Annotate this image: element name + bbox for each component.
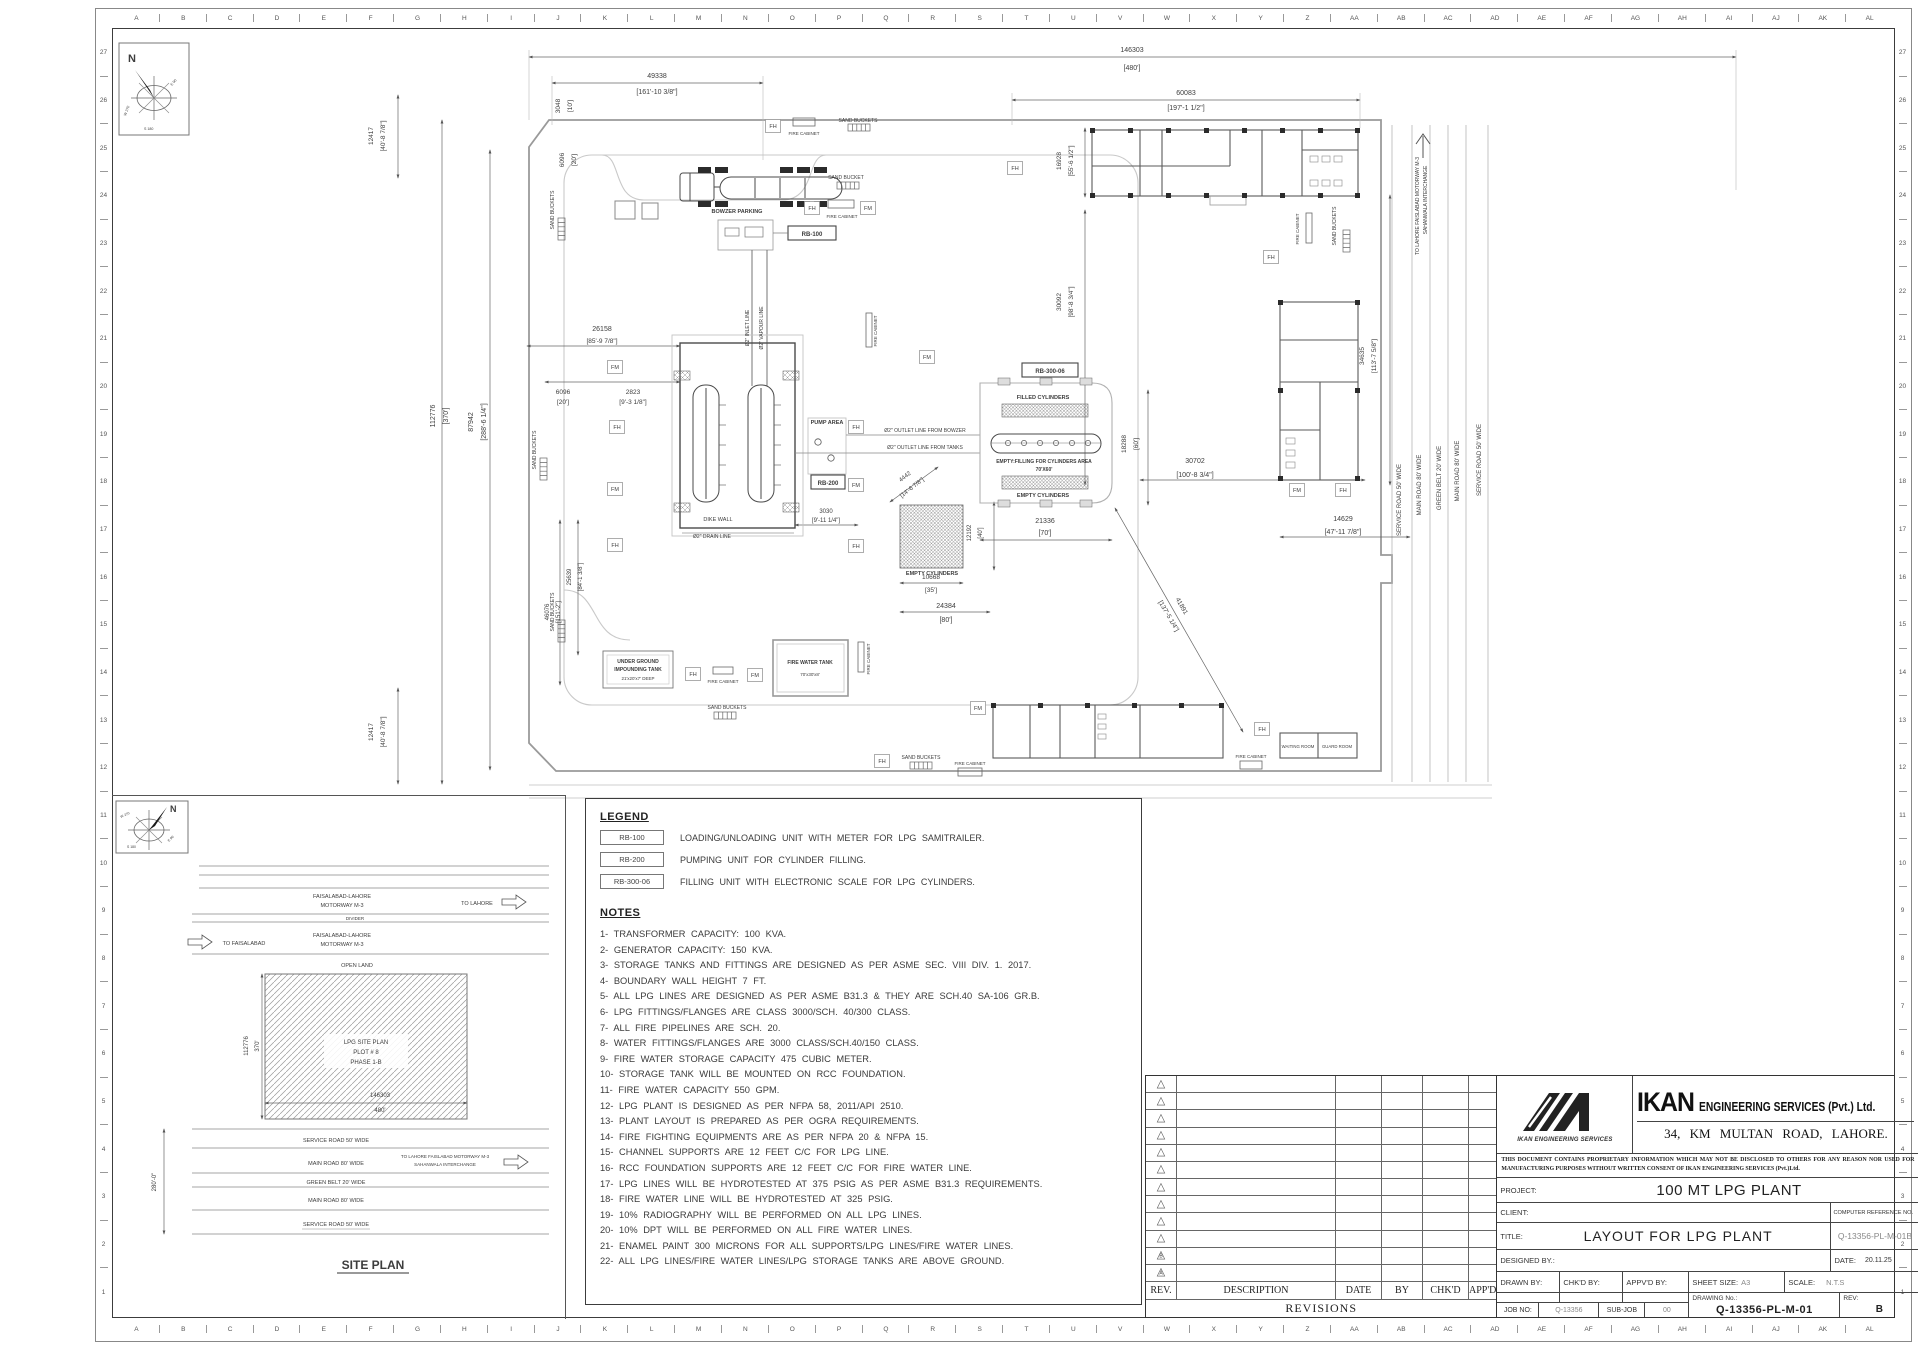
plan-annotation: [55'-6 1/2"]	[1068, 145, 1075, 176]
grid-letter: L	[628, 1318, 675, 1340]
grid-letter: AG	[1612, 1318, 1659, 1340]
plan-annotation: 21'x20'x7' DEEP	[621, 676, 654, 681]
grid-letter: AI	[1706, 8, 1753, 28]
rev-header: REV.	[1146, 1282, 1177, 1299]
plan-annotation: 34635	[1359, 347, 1366, 365]
plan-annotation: [84'-1 3/8"]	[578, 562, 584, 591]
rev-value: B	[1840, 1304, 1918, 1315]
north-arrow-site: N W 270 S 180 E 90	[115, 800, 189, 854]
marker-label: FH	[852, 425, 859, 431]
note-line: 5- ALL LPG LINES ARE DESIGNED AS PER ASM…	[600, 989, 1127, 1005]
grid-letter: N	[722, 8, 769, 28]
grid-letter: L	[628, 8, 675, 28]
company-name-rest: ENGINEERING SERVICES (Pvt.) Ltd.	[1699, 1100, 1875, 1114]
grid-letter: J	[535, 8, 582, 28]
note-line: 13- PLANT LAYOUT IS PREPARED AS PER OGRA…	[600, 1114, 1127, 1130]
grid-number: 25	[1894, 124, 1911, 172]
grid-letter: C	[207, 8, 254, 28]
plan-annotation: FIRE WATER TANK	[787, 660, 833, 666]
scale-value: N.T.S	[1826, 1278, 1844, 1287]
plan-annotation: [151'-2"]	[556, 601, 562, 623]
rev-header: APP'D	[1469, 1282, 1496, 1299]
grid-number: 24	[95, 172, 112, 220]
grid-letter: D	[254, 8, 301, 28]
grid-letter: E	[300, 8, 347, 28]
plan-annotation: FIRE CABINET	[873, 315, 878, 346]
fire-water-tank	[773, 640, 848, 696]
company-logo: IKAN ENGINEERING SERVICES	[1497, 1076, 1633, 1153]
grid-letter: Z	[1284, 1318, 1331, 1340]
plan-annotation: MAIN ROAD 80' WIDE	[1417, 455, 1423, 516]
plan-annotation: [288'-6 1/4"]	[481, 403, 488, 440]
site-annotation: 370'	[255, 1040, 261, 1051]
revision-row: △	[1146, 1196, 1496, 1213]
grid-number: 24	[1894, 172, 1911, 220]
rb100-unit	[718, 220, 836, 386]
plan-annotation: BOWZER PARKING	[712, 209, 763, 215]
grid-letter: AF	[1565, 1318, 1612, 1340]
grid-letter: N	[722, 1318, 769, 1340]
plan-annotation: Ø2" DRAIN LINE	[693, 534, 732, 540]
grid-letter: AB	[1378, 1318, 1425, 1340]
computer-ref-value: Q-13356-PL-M-01B	[1833, 1231, 1916, 1241]
plan-annotation: Ø2" VAPOUR LINE	[759, 306, 765, 350]
grid-number: 2	[95, 1221, 112, 1269]
grid-band-top: ABCDEFGHIJKLMNOPQRSTUVWXYZAAABACADAEAFAG…	[113, 8, 1893, 28]
job-no-value: Q-13356	[1555, 1307, 1582, 1314]
grid-number: 22	[95, 267, 112, 315]
plan-annotation: GREEN BELT 20' WIDE	[1437, 446, 1443, 510]
grid-number: 9	[1894, 887, 1911, 935]
plan-annotation: 3030	[819, 509, 833, 515]
site-annotation: MOTORWAY M-3	[320, 903, 363, 909]
project-value: 100 MT LPG PLANT	[1540, 1182, 1919, 1199]
grid-number: 4	[95, 1125, 112, 1173]
revision-triangle-icon: △	[1157, 1164, 1165, 1175]
grid-letter: F	[347, 1318, 394, 1340]
plan-annotation: [35']	[925, 587, 937, 594]
plan-annotation: [480']	[1124, 65, 1141, 72]
empty-cylinders-pad	[900, 505, 963, 568]
grid-number: 8	[1894, 935, 1911, 983]
note-line: 4- BOUNDARY WALL HEIGHT 7 FT.	[600, 974, 1127, 990]
site-annotation: TO LAHORE	[461, 901, 493, 907]
grid-letter: C	[207, 1318, 254, 1340]
legend-code-rb100: RB-100	[600, 830, 664, 845]
grid-letter: W	[1144, 8, 1191, 28]
grid-number: 20	[1894, 363, 1911, 411]
revision-row: △	[1146, 1076, 1496, 1093]
legend-code-rb200: RB-200	[600, 852, 664, 867]
plan-annotation: WAITING ROOM	[1282, 744, 1315, 749]
company-address: 34, KM MULTAN ROAD, LAHORE.	[1637, 1122, 1914, 1142]
grid-letter: AE	[1518, 8, 1565, 28]
note-line: 2- GENERATOR CAPACITY: 150 KVA.	[600, 943, 1127, 959]
grid-letter: AJ	[1753, 8, 1800, 28]
plan-annotation: [70']	[1038, 530, 1051, 537]
grid-band-left: 2726252423222120191817161514131211109876…	[95, 29, 112, 1316]
appvd-by-label: APPV'D BY:	[1623, 1276, 1670, 1289]
grid-letter: F	[347, 8, 394, 28]
plan-annotation: [370']	[443, 407, 450, 424]
revisions-table: △△△△△△△△△△△B△A REV. DESCRIPTION DATE BY …	[1146, 1076, 1497, 1317]
grid-letter: K	[581, 1318, 628, 1340]
grid-number: 13	[95, 696, 112, 744]
grid-number: 7	[1894, 982, 1911, 1030]
compass-w: W 270	[120, 811, 131, 819]
revision-triangle-icon: △	[1157, 1216, 1165, 1227]
plan-annotation: [40'-8 7/8"]	[380, 120, 387, 151]
marker-label: FM	[923, 355, 931, 361]
plan-annotation: [10']	[567, 100, 574, 112]
grid-letter: AL	[1846, 8, 1893, 28]
note-line: 8- WATER FITTINGS/FLANGES ARE 3000 CLASS…	[600, 1036, 1127, 1052]
grid-letter: X	[1190, 1318, 1237, 1340]
note-line: 14- FIRE FIGHTING EQUIPMENTS ARE AS PER …	[600, 1130, 1127, 1146]
drawing-no-value: Q-13356-PL-M-01	[1689, 1304, 1839, 1316]
plan-annotation: FIRE CABINET	[826, 214, 857, 219]
grid-letter: U	[1050, 8, 1097, 28]
plan-annotation: FILLED CYLINDERS	[1017, 395, 1070, 401]
grid-letter: AE	[1518, 1318, 1565, 1340]
site-annotation: GREEN BELT 20' WIDE	[307, 1180, 366, 1186]
site-annotation: 146303	[370, 1093, 391, 1099]
plan-annotation: 30702	[1185, 458, 1205, 465]
marker-label: FH	[613, 425, 620, 431]
plan-annotation: 41891	[1174, 597, 1189, 616]
grid-number: 15	[95, 601, 112, 649]
compass-s: S 180	[144, 127, 153, 131]
plan-annotation: 146303	[1120, 47, 1143, 54]
bowzer-truck	[680, 167, 842, 207]
marker-label: FM	[611, 365, 619, 371]
legend-desc: PUMPING UNIT FOR CYLINDER FILLING.	[680, 855, 866, 865]
scale-label: SCALE:	[1785, 1276, 1818, 1289]
grid-letter: AD	[1471, 8, 1518, 28]
grid-letter: A	[113, 8, 160, 28]
plan-annotation: 25639	[567, 568, 573, 585]
plan-annotation: 24384	[936, 603, 956, 610]
note-line: 20- 10% DPT WILL BE PERFORMED ON ALL FIR…	[600, 1223, 1127, 1239]
grid-letter: O	[769, 8, 816, 28]
plan-annotation: 3048	[555, 98, 562, 113]
site-annotation: MAIN ROAD 80' WIDE	[308, 1198, 364, 1204]
grid-letter: AC	[1425, 1318, 1472, 1340]
legend-item: RB-100 LOADING/UNLOADING UNIT WITH METER…	[600, 830, 1127, 845]
note-line: 12- LPG PLANT IS DESIGNED AS PER NFPA 58…	[600, 1099, 1127, 1115]
plan-annotation: IMPOUNDING TANK	[614, 667, 662, 673]
plan-annotation: FIRE CABINET	[954, 761, 985, 766]
plan-annotation: [80']	[939, 617, 952, 624]
revision-triangle-icon: △	[1157, 1096, 1165, 1107]
rev-header: DESCRIPTION	[1177, 1282, 1336, 1299]
grid-letter: AI	[1706, 1318, 1753, 1340]
legend-title: LEGEND	[600, 811, 1127, 823]
grid-number: 13	[1894, 696, 1911, 744]
revision-triangle-icon: △	[1157, 1113, 1165, 1124]
grid-number: 14	[1894, 649, 1911, 697]
plan-annotation: 112776	[430, 404, 437, 427]
motorway-arrow-icon	[1416, 134, 1430, 158]
proprietary-disclaimer: THIS DOCUMENT CONTAINS PROPRIETARY INFOR…	[1497, 1154, 1918, 1178]
rev-header: CHK'D	[1423, 1282, 1469, 1299]
revision-triangle-icon: △	[1157, 1130, 1165, 1141]
revision-triangle-icon: △	[1157, 1079, 1165, 1090]
grid-number: 12	[95, 744, 112, 792]
note-line: 6- LPG FITTINGS/FLANGES ARE CLASS 3000/S…	[600, 1005, 1127, 1021]
plan-annotation: Ø2" OUTLET LINE FROM BOWZER	[884, 428, 966, 434]
dimension-lines	[398, 57, 1736, 784]
grid-letter: AA	[1331, 1318, 1378, 1340]
plan-annotation: 4442	[898, 470, 913, 483]
grid-letter: I	[488, 1318, 535, 1340]
sheet-size-value: A3	[1741, 1278, 1750, 1287]
marker-label: FH	[852, 544, 859, 550]
grid-number: 18	[95, 458, 112, 506]
plan-annotation: 18288	[1121, 435, 1128, 453]
grid-number: 21	[95, 315, 112, 363]
revision-triangle-icon: △	[1157, 1147, 1165, 1158]
drawn-by-label: DRAWN BY:	[1497, 1276, 1545, 1289]
revision-row: △	[1146, 1093, 1496, 1110]
office-building	[1090, 128, 1360, 205]
revision-row: △	[1146, 1231, 1496, 1248]
plan-annotation: FIRE CABINET	[866, 643, 871, 674]
plan-annotation: Ø2" OUTLET LINE FROM TANKS	[887, 445, 963, 451]
plan-annotation: SAND BUCKETS	[532, 430, 538, 470]
site-annotation: TO FAISALABAD	[223, 941, 266, 947]
compass-e: E 90	[170, 78, 178, 86]
site-annotation: LPG SITE PLAN	[344, 1040, 388, 1046]
revision-row: △	[1146, 1145, 1496, 1162]
yard-squares	[615, 201, 658, 219]
grid-letter: AH	[1659, 8, 1706, 28]
plan-annotation: FIRE CABINET	[1235, 754, 1266, 759]
sheet-size-label: SHEET SIZE:	[1689, 1276, 1741, 1289]
grid-letter: V	[1097, 8, 1144, 28]
site-annotation: FAISALABAD-LAHORE	[313, 894, 371, 900]
site-annotation: SERVICE ROAD 50' WIDE	[303, 1138, 369, 1144]
compass-n: N	[128, 53, 136, 65]
plan-annotation: TO LAHORE FAISLABAD MOTORWAY M-3	[1415, 157, 1421, 255]
note-line: 21- ENAMEL PAINT 300 MICRONS FOR ALL SUP…	[600, 1239, 1127, 1255]
grid-letter: U	[1050, 1318, 1097, 1340]
revision-triangle-icon: △	[1157, 1182, 1165, 1193]
grid-number: 11	[1894, 792, 1911, 840]
plan-annotation: [197'-1 1/2"]	[1167, 105, 1204, 112]
plan-annotation: FIRE CABINET	[707, 679, 738, 684]
note-line: 22- ALL LPG LINES/FIRE WATER LINES/LPG S…	[600, 1254, 1127, 1270]
grid-letter: M	[675, 8, 722, 28]
rev-label: REV:	[1840, 1293, 1918, 1304]
grid-letter: G	[394, 1318, 441, 1340]
grid-letter: AB	[1378, 8, 1425, 28]
plan-annotation: 12192	[967, 524, 973, 541]
marker-label: FH	[689, 672, 696, 678]
revision-triangle-icon: △A	[1157, 1267, 1165, 1278]
grid-letter: AD	[1471, 1318, 1518, 1340]
drawing-sheet: ABCDEFGHIJKLMNOPQRSTUVWXYZAAABACADAEAFAG…	[0, 0, 1920, 1350]
grid-letter: AC	[1425, 8, 1472, 28]
grid-letter: P	[816, 1318, 863, 1340]
grid-number: 16	[1894, 553, 1911, 601]
marker-label: FH	[1339, 488, 1346, 494]
site-annotation: 112776	[244, 1036, 250, 1056]
plan-annotation: EMPTY CYLINDERS	[906, 571, 958, 577]
plan-annotation: 60083	[1176, 90, 1196, 97]
plan-annotation: RB-100	[802, 232, 823, 238]
grid-number: 7	[95, 982, 112, 1030]
site-annotation: FAISALABAD-LAHORE	[313, 933, 371, 939]
site-plan-drawing: FAISALABAD-LAHOREMOTORWAY M-3TO LAHOREDI…	[112, 796, 565, 1319]
site-annotation: SERVICE ROAD 50' WIDE	[303, 1222, 369, 1228]
rev-header: DATE	[1336, 1282, 1382, 1299]
note-line: 18- FIRE WATER LINE WILL BE HYDROTESTED …	[600, 1192, 1127, 1208]
plan-annotation: SERVICE ROAD 50' WIDE	[1397, 464, 1403, 536]
note-line: 16- RCC FOUNDATION SUPPORTS ARE 12 FEET …	[600, 1161, 1127, 1177]
grid-letter: H	[441, 1318, 488, 1340]
job-no-label: JOB NO:	[1504, 1307, 1532, 1314]
marker-label: FM	[611, 487, 619, 493]
plan-annotation: SERVICE ROAD 50' WIDE	[1477, 424, 1483, 496]
client-label: CLIENT:	[1497, 1206, 1531, 1219]
grid-number: 19	[1894, 410, 1911, 458]
grid-number: 21	[1894, 315, 1911, 363]
plan-annotation: [113'-7 5/8"]	[1371, 339, 1378, 373]
grid-letter: Q	[863, 1318, 910, 1340]
ikan-logo-icon	[1517, 1087, 1613, 1135]
revision-triangle-icon: △B	[1157, 1250, 1165, 1261]
note-line: 9- FIRE WATER STORAGE CAPACITY 475 CUBIC…	[600, 1052, 1127, 1068]
plan-annotation: 16928	[1056, 152, 1063, 170]
grid-letter: H	[441, 8, 488, 28]
north-arrow-main: N W 270 S 180 E 90	[118, 42, 190, 136]
designed-by-label: DESIGNED BY.:	[1497, 1254, 1557, 1267]
plan-annotation: [40']	[978, 527, 984, 538]
plan-annotation: EMPTY CYLINDERS	[1017, 493, 1069, 499]
grid-letter: Q	[863, 8, 910, 28]
plan-annotation: 6096	[559, 152, 566, 167]
marker-label: FH	[1258, 727, 1265, 733]
plan-annotation: FIRE CABINET	[788, 131, 819, 136]
note-line: 3- STORAGE TANKS AND FITTINGS ARE DESIGN…	[600, 958, 1127, 974]
marker-label: FM	[1293, 488, 1301, 494]
rev-header: BY	[1382, 1282, 1423, 1299]
plan-annotation: [20']	[571, 154, 578, 166]
grid-letter: B	[160, 1318, 207, 1340]
note-line: 11- FIRE WATER CAPACITY 550 GPM.	[600, 1083, 1127, 1099]
grid-letter: AG	[1612, 8, 1659, 28]
grid-number: 1	[95, 1268, 112, 1316]
right-building	[1278, 300, 1360, 481]
marker-label: FM	[864, 206, 872, 212]
grid-number: 10	[95, 839, 112, 887]
site-annotation: SAHANWALA INTERCHANGE	[414, 1162, 476, 1167]
grid-letter: E	[300, 1318, 347, 1340]
revision-row: △	[1146, 1213, 1496, 1230]
grid-number: 11	[95, 792, 112, 840]
plan-annotation: 49338	[647, 73, 667, 80]
revisions-title-block: △△△△△△△△△△△B△A REV. DESCRIPTION DATE BY …	[1145, 1075, 1895, 1318]
grid-letter: AK	[1799, 1318, 1846, 1340]
legend-desc: FILLING UNIT WITH ELECTRONIC SCALE FOR L…	[680, 877, 975, 887]
plan-annotation: RB-200	[818, 481, 839, 487]
marker-label: FH	[611, 543, 618, 549]
grid-letter: A	[113, 1318, 160, 1340]
grid-letter: AA	[1331, 8, 1378, 28]
plan-annotation: GUARD ROOM	[1322, 744, 1352, 749]
marker-label: FH	[769, 124, 776, 130]
grid-letter: AK	[1799, 8, 1846, 28]
grid-letter: W	[1144, 1318, 1191, 1340]
cylinder-shed	[980, 363, 1112, 507]
plan-annotation: [9'-11 1/4"]	[812, 518, 841, 524]
drawing-no-label: DRAWING No.:	[1689, 1293, 1839, 1304]
grid-letter: P	[816, 8, 863, 28]
marker-label: FM	[974, 706, 982, 712]
notes-title: NOTES	[600, 907, 1127, 919]
plan-annotation: [161'-10 3/8"]	[636, 89, 677, 96]
plan-annotation: 12417	[368, 127, 375, 145]
grid-letter: R	[909, 1318, 956, 1340]
plan-annotation: [47'-11 7/8"]	[1325, 529, 1362, 536]
plan-annotation: 87942	[468, 412, 475, 432]
note-line: 15- CHANNEL SUPPORTS ARE 12 FEET C/C FOR…	[600, 1145, 1127, 1161]
plan-annotation: [100'-8 3/4"]	[1176, 472, 1213, 479]
grid-letter: B	[160, 8, 207, 28]
plan-annotation: [40'-8 7/8"]	[380, 716, 387, 747]
plan-annotation: EMPTY:FILLING FOR CYLINDERS AREA	[996, 459, 1092, 465]
date-value: 20.11.25	[1865, 1257, 1892, 1264]
legend-desc: LOADING/UNLOADING UNIT WITH METER FOR LP…	[680, 833, 984, 843]
plan-annotation: [98'-8 3/4"]	[1068, 286, 1075, 317]
revision-row: △	[1146, 1179, 1496, 1196]
grid-letter: Y	[1237, 8, 1284, 28]
plan-annotation: [85'-9 7/8"]	[586, 338, 617, 345]
plan-annotation: DIKE WALL	[703, 517, 732, 523]
grid-number: 14	[95, 649, 112, 697]
grid-number: 20	[95, 363, 112, 411]
grid-number: 25	[95, 124, 112, 172]
grid-number: 17	[95, 506, 112, 554]
marker-label: FH	[1267, 255, 1274, 261]
drawing-title-value: LAYOUT FOR LPG PLANT	[1526, 1228, 1831, 1244]
project-label: PROJECT:	[1497, 1184, 1539, 1197]
compass-w: W 270	[123, 105, 130, 116]
revision-row: △	[1146, 1128, 1496, 1145]
grid-number: 18	[1894, 458, 1911, 506]
grid-letter: X	[1190, 8, 1237, 28]
plan-annotation: [60']	[1133, 438, 1140, 450]
marker-label: FM	[751, 673, 759, 679]
grid-letter: AF	[1565, 8, 1612, 28]
title-label: TITLE:	[1497, 1230, 1526, 1243]
grid-number: 3	[95, 1173, 112, 1221]
plan-annotation: RB-300-06	[1035, 369, 1065, 375]
note-line: 17- LPG LINES WILL BE HYDROTESTED AT 375…	[600, 1177, 1127, 1193]
grid-number: 9	[95, 887, 112, 935]
lpg-tank	[693, 385, 774, 502]
grid-letter: Z	[1284, 8, 1331, 28]
legend-notes-panel: LEGEND RB-100 LOADING/UNLOADING UNIT WIT…	[585, 798, 1142, 1305]
grid-letter: O	[769, 1318, 816, 1340]
note-line: 19- 10% RADIOGRAPHY WILL BE PERFORMED ON…	[600, 1208, 1127, 1224]
revisions-caption: REVISIONS	[1146, 1300, 1496, 1317]
bottom-building	[991, 703, 1224, 758]
grid-number: 17	[1894, 506, 1911, 554]
site-annotation: 280'-0"	[152, 1173, 158, 1192]
grid-number: 8	[95, 935, 112, 983]
